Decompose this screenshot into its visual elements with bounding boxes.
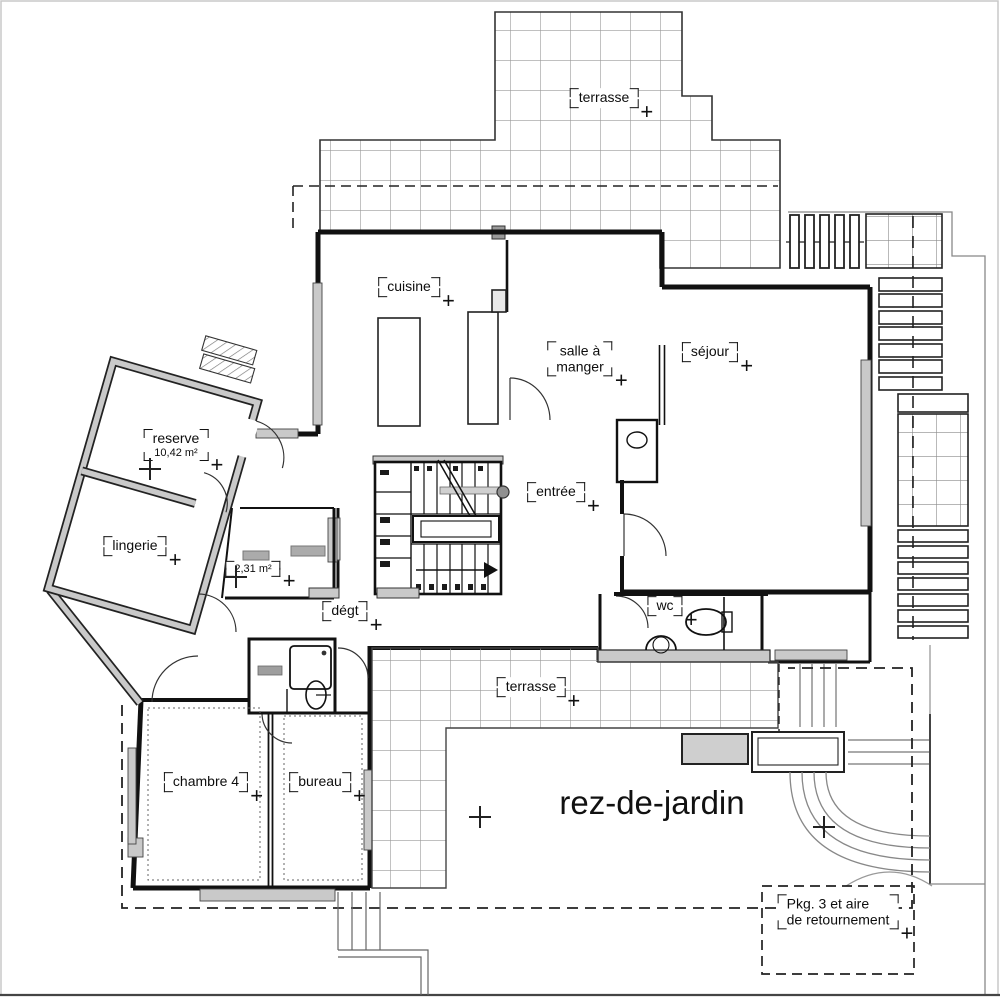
kitchen-fixtures [378,290,506,426]
floor-plan-page: terrasse+cuisine+salle àmanger+séjour+re… [0,0,1000,998]
parking-area-outline [762,886,914,974]
floor-plan-svg [0,0,1000,998]
room-insets [148,708,362,880]
planters [682,732,844,772]
wc-room [598,594,770,662]
exterior-landing-top [866,214,942,268]
closet [222,508,334,598]
bathroom [249,639,335,713]
walkway [848,714,985,884]
right-exterior-stairs [879,216,968,640]
pergola-slats [786,215,864,268]
reserve-lingerie-wing [48,313,311,641]
utility-closet [617,420,657,482]
driveway-arcs [790,772,932,886]
floor-caption: rez-de-jardin [551,784,752,822]
